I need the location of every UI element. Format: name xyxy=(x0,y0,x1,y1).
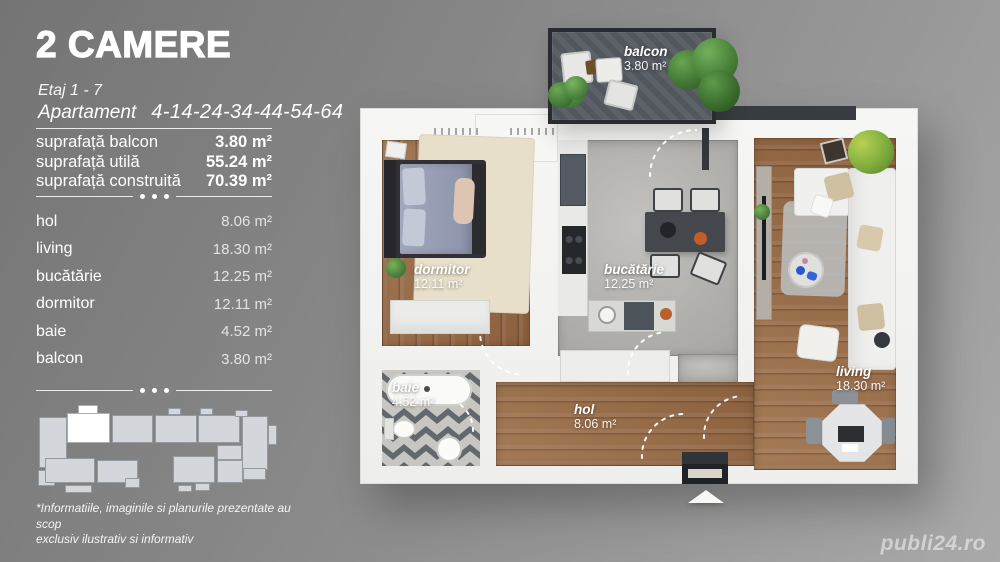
area-value: 3.80 m² xyxy=(215,133,272,153)
balcony-chair xyxy=(603,79,638,111)
balcony-label: balcon 3.80 m² xyxy=(624,44,668,73)
footprint-block xyxy=(168,408,181,415)
apartment-numbers: 4-14-24-34-44-54-64 xyxy=(151,101,343,124)
floor-range: Etaj 1 - 7 xyxy=(38,82,102,100)
plan-label-living: living 18.30 m² xyxy=(836,364,885,393)
room-label: balcon xyxy=(36,350,83,368)
room-value: 12.25 m² xyxy=(213,268,272,285)
room-list: hol8.06 m² living18.30 m² bucătărie12.25… xyxy=(36,208,272,373)
floor-vase xyxy=(874,332,890,348)
kitchen-cabinet xyxy=(624,302,654,330)
footprint-block xyxy=(200,408,213,415)
dining-chair xyxy=(653,188,683,212)
footprint-block xyxy=(217,445,242,460)
tree xyxy=(548,76,588,112)
area-label: suprafață balcon xyxy=(36,133,158,153)
room-label: dormitor xyxy=(36,295,95,313)
area-row: suprafață balcon 3.80 m² xyxy=(36,133,272,153)
footprint-block xyxy=(235,410,248,417)
balcony-door-leaf xyxy=(702,128,709,170)
list-item: dormitor12.11 m² xyxy=(36,291,272,319)
window-marks xyxy=(510,128,554,135)
area-row: suprafață construită 70.39 m² xyxy=(36,172,272,192)
room-bucatarie-passage xyxy=(678,354,738,384)
room-area: 18.30 m² xyxy=(836,379,885,393)
room-value: 12.11 m² xyxy=(214,296,272,313)
stove xyxy=(562,226,586,274)
apartment-label: Apartament xyxy=(38,102,136,124)
room-label: hol xyxy=(36,213,57,231)
bedroom-plant xyxy=(386,258,406,278)
room-name: baie xyxy=(392,380,434,395)
surface-areas: suprafață balcon 3.80 m² suprafață utilă… xyxy=(36,133,272,192)
pillow xyxy=(402,208,426,246)
robe xyxy=(453,178,475,225)
footprint-block xyxy=(65,485,92,493)
footprint-block xyxy=(173,456,215,483)
footprint-block xyxy=(268,425,277,445)
desk-chair xyxy=(882,418,895,444)
dining-table xyxy=(645,212,725,252)
room-label: baie xyxy=(36,323,66,341)
room-name: living xyxy=(836,364,885,379)
room-value: 4.52 m² xyxy=(221,323,272,340)
area-label: suprafață utilă xyxy=(36,153,140,173)
divider xyxy=(36,128,272,129)
bowl xyxy=(694,232,707,245)
room-name: hol xyxy=(574,402,616,417)
plan-label-hol: hol 8.06 m² xyxy=(574,402,616,431)
area-value: 55.24 m² xyxy=(206,153,272,173)
page-title: 2 CAMERE xyxy=(36,24,231,66)
room-label: bucătărie xyxy=(36,268,102,286)
desk-chair xyxy=(806,418,822,444)
plan-label-bucatarie: bucătărie 12.25 m² xyxy=(604,262,664,291)
footprint-block xyxy=(198,415,240,443)
bed-headboard xyxy=(384,160,396,258)
papers xyxy=(842,444,858,452)
room-value: 8.06 m² xyxy=(221,213,272,230)
area-label: suprafață construită xyxy=(36,172,181,192)
footprint-block xyxy=(125,478,140,488)
laptop xyxy=(838,426,864,442)
room-value: 3.80 m² xyxy=(221,351,272,368)
console-plant xyxy=(754,204,770,220)
sink xyxy=(436,436,462,462)
list-item: baie4.52 m² xyxy=(36,318,272,346)
footprint-block-highlight xyxy=(67,413,110,443)
bed-bench xyxy=(472,164,486,254)
dotted-divider xyxy=(36,194,272,199)
room-label: living xyxy=(36,240,72,258)
apartment-line: Apartament 4-14-24-34-44-54-64 xyxy=(38,101,343,124)
plan-label-dormitor: dormitor 12.11 m² xyxy=(414,262,470,291)
pouf xyxy=(796,324,840,363)
plate xyxy=(660,222,676,238)
building-footprint-map xyxy=(33,402,279,496)
room-name: dormitor xyxy=(414,262,470,277)
list-item: living18.30 m² xyxy=(36,236,272,264)
footprint-block xyxy=(178,485,192,492)
room-name: balcon xyxy=(624,44,668,59)
footprint-block xyxy=(112,415,153,443)
room-area: 3.80 m² xyxy=(624,59,668,73)
sofa-cushion xyxy=(856,224,884,252)
room-name: bucătărie xyxy=(604,262,664,277)
toilet xyxy=(393,420,415,438)
room-area: 12.25 m² xyxy=(604,277,664,291)
entrance-arrow-icon xyxy=(688,490,724,503)
area-row: suprafață utilă 55.24 m² xyxy=(36,153,272,173)
area-value: 70.39 m² xyxy=(206,172,272,192)
footprint-block xyxy=(217,460,243,483)
disclaimer-text: *Informatiile, imaginile si planurile pr… xyxy=(36,501,306,548)
cooking-pot xyxy=(660,308,672,320)
sofa-cushion xyxy=(857,303,886,332)
fridge xyxy=(560,154,586,206)
pillow xyxy=(402,167,426,205)
hallway-sideboard xyxy=(560,350,670,382)
list-item: balcon3.80 m² xyxy=(36,346,272,374)
footprint-block xyxy=(242,416,268,470)
footprint-block xyxy=(243,468,266,480)
floor-plan: dormitor 12.11 m² bucătărie 12.25 m² liv… xyxy=(360,108,918,484)
list-item: bucătărie12.25 m² xyxy=(36,263,272,291)
watermark: publi24.ro xyxy=(881,532,986,556)
room-area: 8.06 m² xyxy=(574,417,616,431)
dotted-divider xyxy=(36,388,272,393)
living-plant xyxy=(848,130,894,174)
tree xyxy=(668,38,742,114)
footprint-block xyxy=(195,483,210,491)
room-area: 12.11 m² xyxy=(414,277,470,291)
listing-image: 2 CAMERE Etaj 1 - 7 Apartament 4-14-24-3… xyxy=(0,0,1000,562)
footprint-block xyxy=(45,458,95,483)
room-value: 18.30 m² xyxy=(213,241,272,258)
pink-decor xyxy=(802,258,808,264)
entrance-mat xyxy=(682,452,728,464)
nightstand xyxy=(385,141,407,160)
footprint-block xyxy=(155,415,197,443)
blue-decor xyxy=(796,266,805,275)
kitchen-sink xyxy=(598,306,616,324)
plan-label-baie: baie 4.52 m² xyxy=(392,380,434,409)
entrance-sill-inner xyxy=(688,469,722,478)
dining-chair xyxy=(690,188,720,212)
dresser xyxy=(390,300,490,334)
list-item: hol8.06 m² xyxy=(36,208,272,236)
room-area: 4.52 m² xyxy=(392,395,434,409)
